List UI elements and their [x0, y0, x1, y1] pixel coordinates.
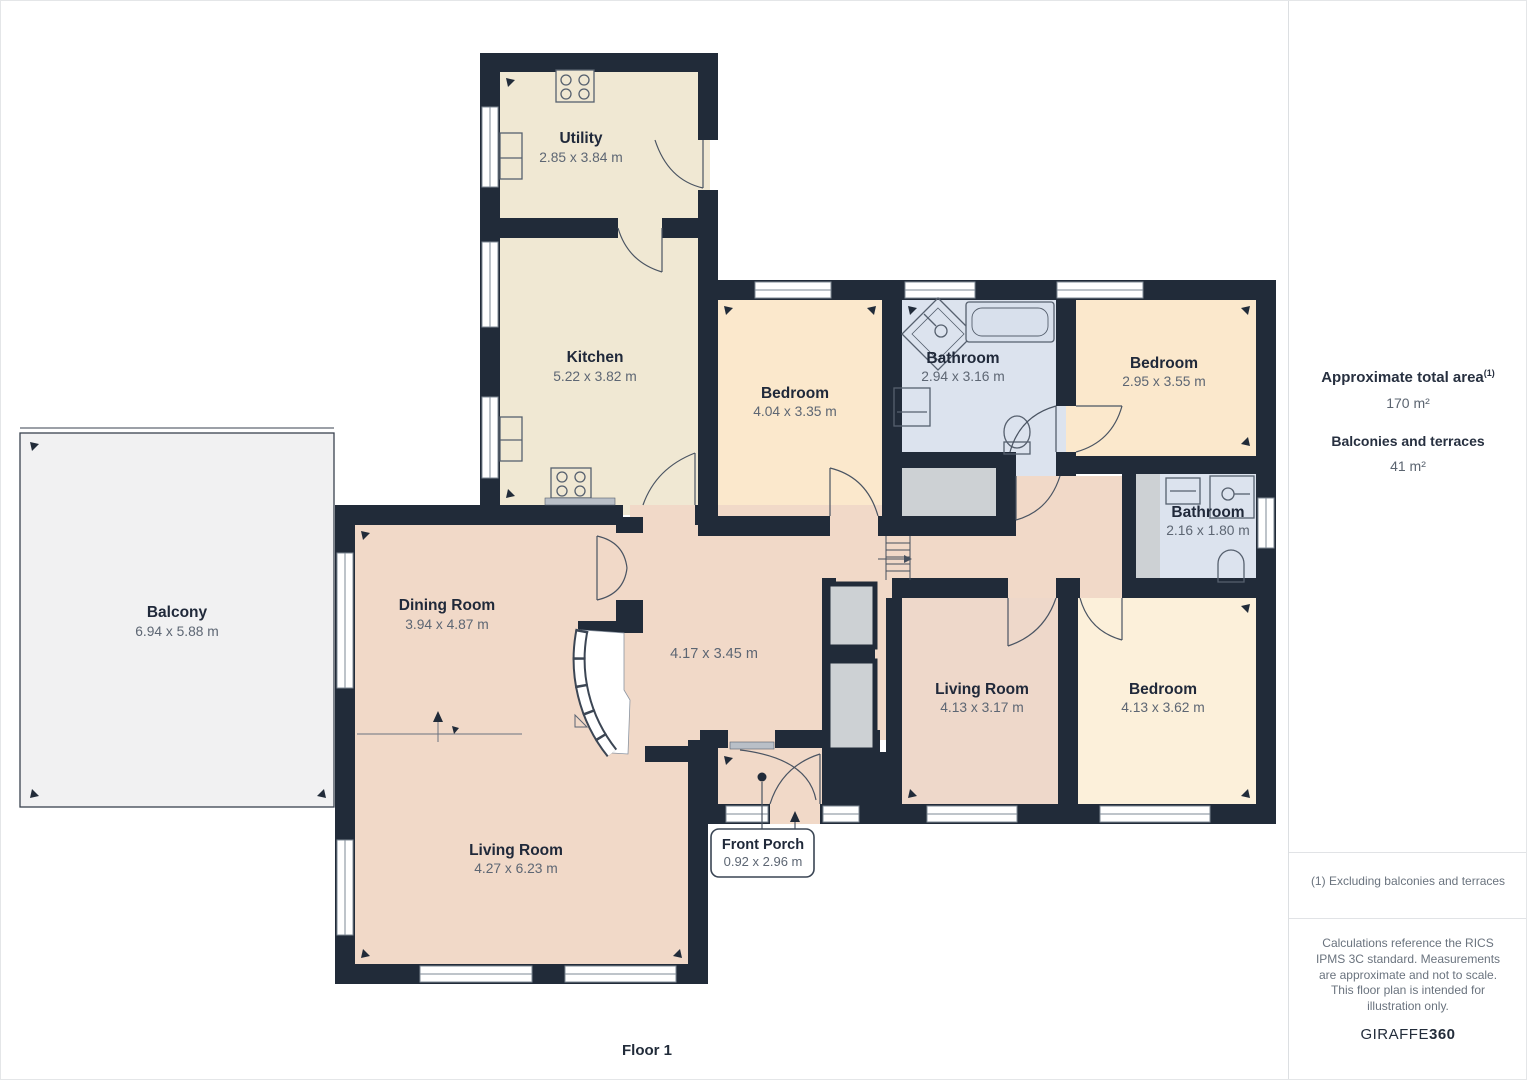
label-porch-dims: 0.92 x 2.96 m — [724, 854, 803, 869]
total-area-label: Approximate total area — [1321, 369, 1484, 386]
brand-suffix: 360 — [1429, 1026, 1456, 1043]
total-area-title: Approximate total area(1) — [1289, 368, 1527, 386]
balconies-label: Balconies and terraces — [1289, 433, 1527, 449]
label-kitchen-dims: 5.22 x 3.82 m — [553, 369, 637, 384]
label-porch-name: Front Porch — [722, 837, 804, 853]
label-hall-dims: 4.17 x 3.45 m — [670, 646, 758, 662]
label-bedroom-topright-name: Bedroom — [1130, 355, 1198, 372]
label-living-main-name: Living Room — [469, 842, 563, 859]
stove-icon-utility — [556, 70, 594, 102]
footnote-text: (1) Excluding balconies and terraces — [1299, 874, 1517, 888]
label-bedroom-bottomright-name: Bedroom — [1129, 681, 1197, 698]
threshold — [730, 742, 774, 749]
label-dining-dims: 3.94 x 4.87 m — [405, 617, 489, 632]
sidebar-divider-1 — [1289, 852, 1527, 853]
floors — [20, 62, 1266, 964]
brand-name: GIRAFFE — [1360, 1026, 1429, 1043]
floorplan-page: Utility 2.85 x 3.84 m Kitchen 5.22 x 3.8… — [0, 0, 1527, 1080]
label-bedroom-top-dims: 4.04 x 3.35 m — [753, 404, 837, 419]
label-living-right-dims: 4.13 x 3.17 m — [940, 700, 1024, 715]
label-bathroom-right-name: Bathroom — [1171, 504, 1244, 521]
total-area-footnote-marker: (1) — [1484, 368, 1495, 378]
bathtub-icon — [966, 302, 1054, 342]
balconies-value: 41 m² — [1289, 458, 1527, 474]
label-utility-dims: 2.85 x 3.84 m — [539, 150, 623, 165]
label-bathroom-right-dims: 2.16 x 1.80 m — [1166, 523, 1250, 538]
label-balcony-dims: 6.94 x 5.88 m — [135, 624, 219, 639]
label-bedroom-top-name: Bedroom — [761, 385, 829, 402]
sidebar-area-summary: Approximate total area(1) 170 m² Balconi… — [1289, 368, 1527, 474]
label-living-right-name: Living Room — [935, 681, 1029, 698]
porch-callout: Front Porch 0.92 x 2.96 m — [711, 829, 814, 877]
room-floor-living-main — [355, 525, 688, 964]
entrance-dot — [758, 773, 767, 782]
floor-label: Floor 1 — [567, 1042, 727, 1059]
closet-top — [892, 468, 996, 516]
label-kitchen-name: Kitchen — [567, 349, 624, 366]
label-bathroom-top-name: Bathroom — [926, 350, 999, 367]
giraffe360-logo: GIRAFFE360 — [1289, 1026, 1527, 1043]
closet-right-strip — [1136, 474, 1160, 582]
label-bedroom-topright-dims: 2.95 x 3.55 m — [1122, 374, 1206, 389]
label-balcony-name: Balcony — [147, 604, 208, 621]
label-bathroom-top-dims: 2.94 x 3.16 m — [921, 369, 1005, 384]
floorplan-drawing: Utility 2.85 x 3.84 m Kitchen 5.22 x 3.8… — [0, 0, 1288, 1080]
sidebar-divider-2 — [1289, 918, 1527, 919]
total-area-value: 170 m² — [1289, 395, 1527, 411]
label-dining-name: Dining Room — [399, 597, 495, 614]
label-utility-name: Utility — [559, 130, 602, 147]
label-living-main-dims: 4.27 x 6.23 m — [474, 861, 558, 876]
label-bedroom-bottomright-dims: 4.13 x 3.62 m — [1121, 700, 1205, 715]
closets-living-right — [828, 584, 875, 750]
disclaimer-text: Calculations reference the RICS IPMS 3C … — [1311, 936, 1505, 1015]
sidebar: Approximate total area(1) 170 m² Balconi… — [1288, 0, 1527, 1080]
